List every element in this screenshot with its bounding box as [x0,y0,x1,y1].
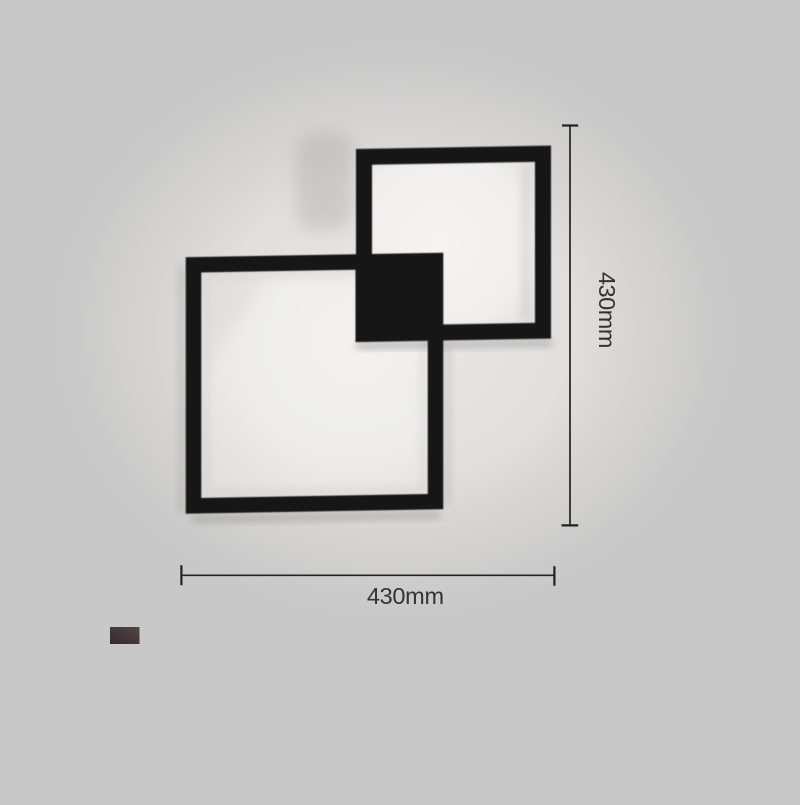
svg-text:430mm: 430mm [594,272,620,348]
svg-text:430mm: 430mm [367,583,444,609]
